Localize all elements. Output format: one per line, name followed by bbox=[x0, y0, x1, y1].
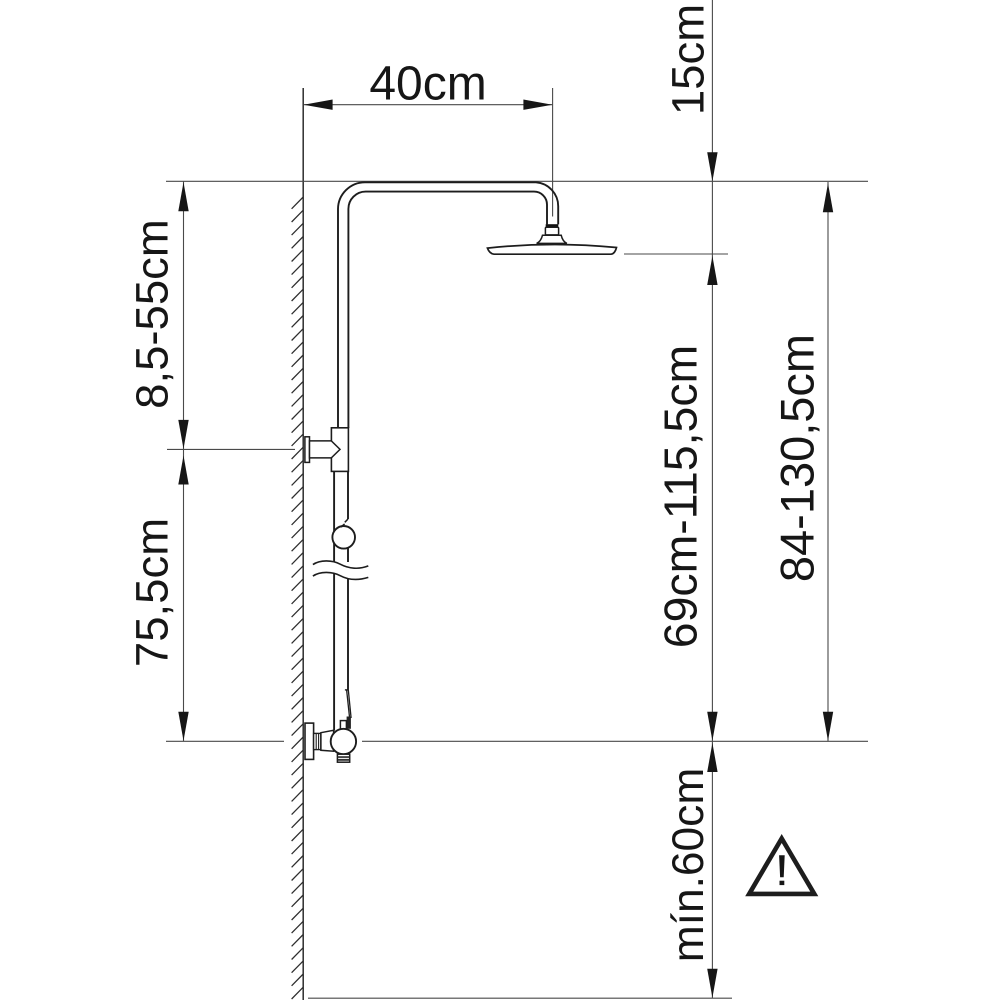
svg-text:15cm: 15cm bbox=[663, 4, 714, 115]
svg-text:75,5cm: 75,5cm bbox=[127, 518, 178, 667]
svg-text:84-130,5cm: 84-130,5cm bbox=[771, 334, 824, 582]
svg-text:8,5-55cm: 8,5-55cm bbox=[127, 219, 178, 409]
svg-text:40cm: 40cm bbox=[369, 58, 486, 111]
svg-text:mín.60cm: mín.60cm bbox=[664, 768, 713, 962]
svg-text:69cm-115,5cm: 69cm-115,5cm bbox=[655, 345, 707, 648]
